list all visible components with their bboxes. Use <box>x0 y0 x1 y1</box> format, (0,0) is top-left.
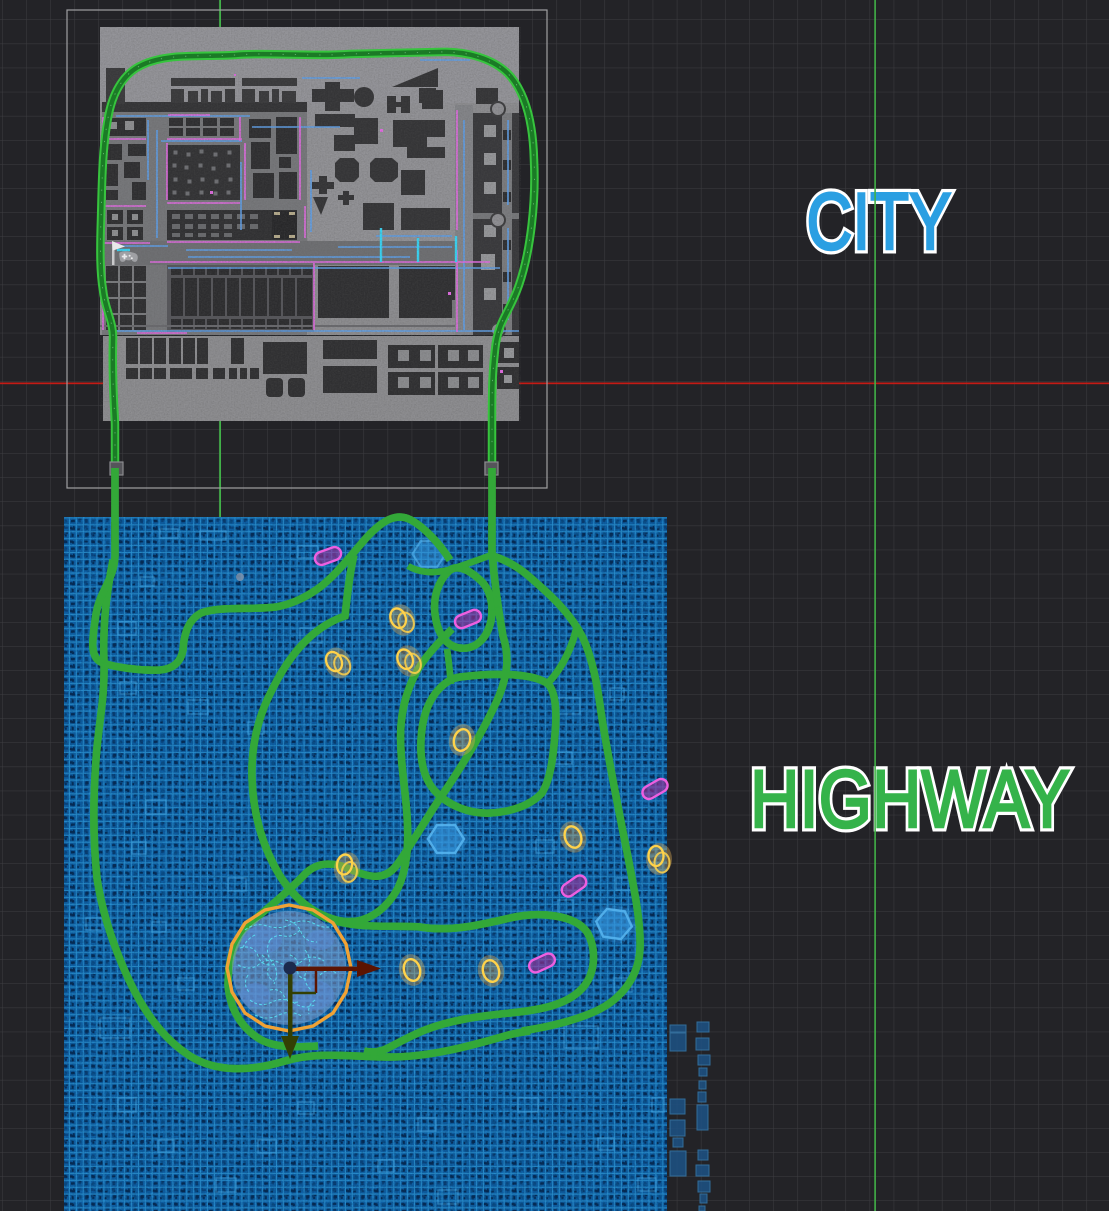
svg-text:HIGHWAY: HIGHWAY <box>750 754 1070 845</box>
svg-text:CITY: CITY <box>807 177 952 267</box>
